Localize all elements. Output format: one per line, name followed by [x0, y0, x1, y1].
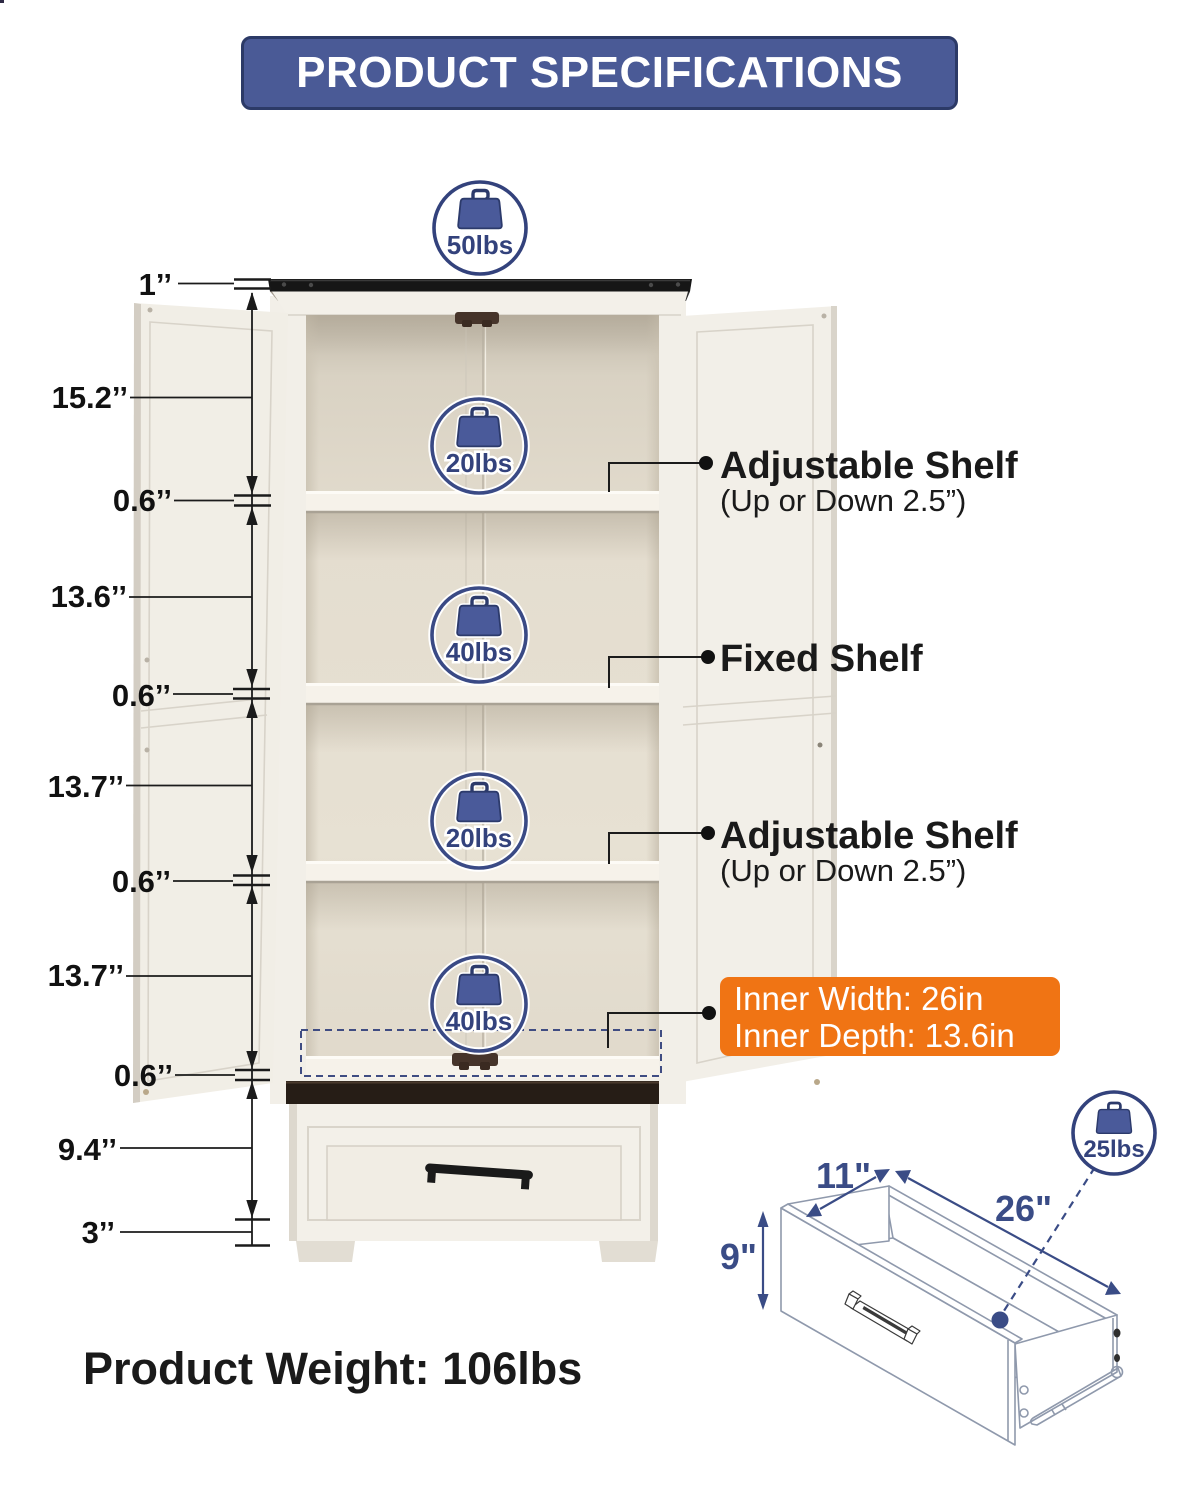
svg-text:13.7’’: 13.7’’ — [48, 958, 124, 993]
svg-text:40lbs: 40lbs — [446, 637, 513, 667]
svg-text:0.6’’: 0.6’’ — [112, 678, 171, 713]
svg-text:0.6’’: 0.6’’ — [113, 483, 172, 518]
svg-text:26": 26" — [995, 1188, 1052, 1229]
svg-text:20lbs: 20lbs — [446, 823, 513, 853]
svg-text:3’’: 3’’ — [82, 1215, 115, 1250]
svg-text:15.2’’: 15.2’’ — [52, 380, 128, 415]
svg-text:(Up or Down 2.5”): (Up or Down 2.5”) — [720, 853, 966, 888]
svg-text:11": 11" — [816, 1155, 871, 1196]
svg-text:20lbs: 20lbs — [446, 448, 513, 478]
svg-text:Product Weight: 106lbs: Product Weight: 106lbs — [83, 1343, 582, 1394]
svg-text:1’’: 1’’ — [139, 267, 172, 302]
svg-text:13.6’’: 13.6’’ — [51, 579, 127, 614]
svg-text:0.6’’: 0.6’’ — [114, 1058, 173, 1093]
svg-text:50lbs: 50lbs — [447, 230, 514, 260]
svg-text:Fixed Shelf: Fixed Shelf — [720, 638, 923, 680]
svg-text:0.6’’: 0.6’’ — [112, 864, 171, 899]
svg-text:9.4’’: 9.4’’ — [58, 1132, 117, 1167]
svg-text:(Up or Down 2.5”): (Up or Down 2.5”) — [720, 483, 966, 518]
svg-text:25lbs: 25lbs — [1083, 1136, 1144, 1163]
svg-text:Adjustable Shelf: Adjustable Shelf — [720, 445, 1018, 487]
svg-text:40lbs: 40lbs — [446, 1006, 513, 1036]
svg-text:9": 9" — [720, 1236, 757, 1277]
svg-text:Adjustable Shelf: Adjustable Shelf — [720, 815, 1018, 857]
svg-text:13.7’’: 13.7’’ — [48, 769, 124, 804]
